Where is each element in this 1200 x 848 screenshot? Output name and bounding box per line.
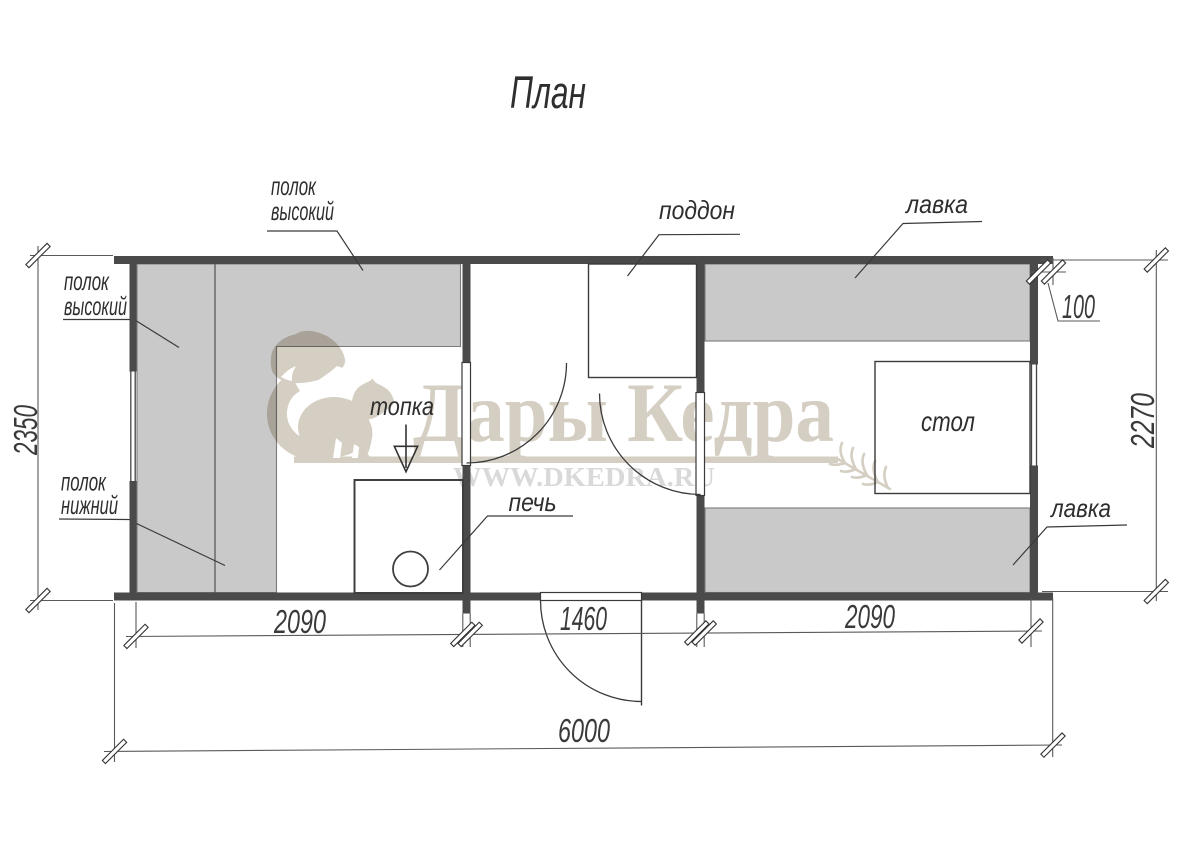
svg-text:2270: 2270 xyxy=(1124,393,1161,449)
svg-text:стол: стол xyxy=(921,406,975,437)
svg-text:высокий: высокий xyxy=(271,196,334,226)
svg-text:нижний: нижний xyxy=(61,490,118,520)
svg-text:2350: 2350 xyxy=(7,405,44,456)
svg-text:6000: 6000 xyxy=(558,712,610,749)
svg-text:План: План xyxy=(510,67,586,118)
svg-text:высокий: высокий xyxy=(64,291,127,321)
svg-text:печь: печь xyxy=(509,487,557,517)
svg-text:лавка: лавка xyxy=(904,189,968,219)
svg-text:1460: 1460 xyxy=(560,600,607,637)
svg-text:100: 100 xyxy=(1062,288,1095,325)
svg-text:Дары Кедра: Дары Кедра xyxy=(413,366,834,460)
svg-text:топка: топка xyxy=(370,391,434,421)
svg-text:WWW.DKEDRA.RU: WWW.DKEDRA.RU xyxy=(453,462,715,492)
svg-text:2090: 2090 xyxy=(844,598,895,635)
svg-text:лавка: лавка xyxy=(1049,493,1111,523)
svg-text:поддон: поддон xyxy=(659,195,735,225)
svg-text:2090: 2090 xyxy=(273,603,326,640)
